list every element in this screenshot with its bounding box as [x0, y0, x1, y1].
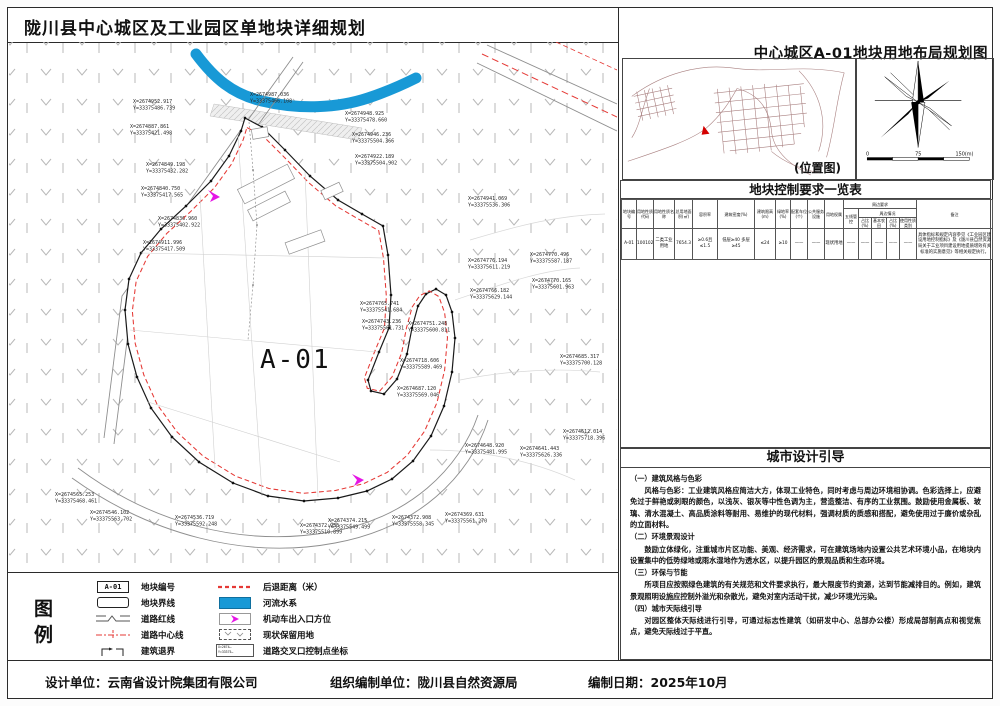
- coordinate-label: X=2674546.102Y=33375563.702: [90, 510, 132, 523]
- design-guide-box: 城市设计引导 （一）建筑风格与色彩 风格与色彩：工业建筑风格应简洁大方，体现工业…: [620, 448, 991, 660]
- coordinate-label: X=2674372.955Y=33375510.899: [300, 523, 342, 536]
- coordinate-label: X=2674718.606Y=33375589.469: [400, 358, 442, 371]
- compass-box: 0 75 150(m): [856, 58, 994, 180]
- plan-sheet: 陇川县中心城区及工业园区单地块详细规划: [7, 7, 993, 699]
- coordinate-label: X=2674849.198Y=33375432.282: [146, 162, 188, 175]
- coordinate-label: X=2674770.165Y=33375601.963: [532, 278, 574, 291]
- legend-item-intersection-coords: X=2674…Y=33375… 道路交叉口控制点坐标: [216, 644, 348, 657]
- existing-land-symbol: [219, 629, 251, 640]
- coordinate-label: X=2674776.194Y=33375611.219: [468, 258, 510, 271]
- vehicle-entrance-symbol: [219, 613, 251, 625]
- legend-column-right: 后退距离（米） 河流水系 机动车出入口方位 现状保留用地 X=2674…Y=33…: [216, 580, 348, 657]
- coordinate-label: X=2674948.925Y=33375478.660: [345, 111, 387, 124]
- plan-map-canvas: A-01 X=2674952.917Y=33375486.739X=267488…: [9, 42, 617, 572]
- intersection-coords-symbol: X=2674…Y=33375…: [216, 644, 254, 657]
- legend-item-existing-land: 现状保留用地: [216, 628, 348, 641]
- design-unit: 设计单位：云南省设计院集团有限公司: [45, 672, 258, 691]
- coordinate-label: X=2674987.036Y=33375466.108: [250, 92, 292, 105]
- map-area: A-01 X=2674952.917Y=33375486.739X=267488…: [8, 42, 618, 572]
- coordinate-label: X=2674911.996Y=33375417.509: [143, 240, 185, 253]
- svg-text:75: 75: [915, 151, 921, 157]
- legend-item-building-setback: 建筑退界: [94, 644, 184, 657]
- legend-item-setback-distance: 后退距离（米）: [216, 580, 348, 593]
- coordinate-label: X=2674648.920Y=33375481.995: [465, 443, 507, 456]
- control-table-box: 地块控制要求一览表 地块编号 用地性质代码 用地性质名称 总用地面积(㎡) 容积…: [620, 180, 991, 448]
- parcel-id-label: A-01: [260, 345, 331, 375]
- svg-text:150(m): 150(m): [955, 151, 973, 157]
- coordinate-label: X=2674743.236Y=33375561.731: [362, 319, 404, 332]
- coordinate-label: X=2674685.317Y=33375700.128: [560, 354, 602, 367]
- coordinate-label: X=2674536.719Y=33375592.248: [175, 515, 217, 528]
- building-setback-symbol: [95, 645, 131, 657]
- sheet-title-bar: 陇川县中心城区及工业园区单地块详细规划: [8, 8, 618, 43]
- coordinate-label: X=2674922.189Y=33375504.902: [355, 154, 397, 167]
- drawing-title: 中心城区A-01地块用地布局规划图: [620, 42, 992, 58]
- coordinate-label: X=2674641.443Y=33375626.336: [520, 446, 562, 459]
- parcel-code-symbol: A-01: [97, 581, 129, 593]
- design-guide-text: （一）建筑风格与色彩 风格与色彩：工业建筑风格应简洁大方，体现工业特色，同时考虑…: [621, 468, 990, 638]
- site-marker-icon: [702, 126, 710, 135]
- legend-item-road-redline: 道路红线: [94, 612, 184, 625]
- coordinate-label: X=2674836.960Y=33375402.922: [158, 216, 200, 229]
- legend-title: 图例: [34, 597, 60, 648]
- legend-item-vehicle-entrance: 机动车出入口方位: [216, 612, 348, 625]
- coordinate-label: X=2674751.248Y=33375600.811: [408, 321, 450, 334]
- coordinate-label: X=2674840.750Y=33375417.565: [141, 186, 183, 199]
- parcel-boundary-symbol: [97, 597, 129, 608]
- river-symbol: [219, 597, 251, 609]
- legend-area: 图例 A-01 地块编号 地块界线 道路红线: [8, 572, 618, 661]
- legend-item-parcel-boundary: 地块界线: [94, 596, 184, 609]
- coordinate-label: X=2674765.741Y=33375541.684: [360, 301, 402, 314]
- footer-bar: 设计单位：云南省设计院集团有限公司 组织编制单位：陇川县自然资源局 编制日期：2…: [8, 660, 992, 699]
- table-row: A-01100102二类工业用地 7654.3≥0.6且≤1.5低层≥40 多层…: [622, 229, 993, 260]
- sheet-title: 陇川县中心城区及工业园区单地块详细规划: [24, 14, 366, 39]
- coordinate-label: X=2674946.236Y=33375504.366: [352, 132, 394, 145]
- control-table-title: 地块控制要求一览表: [621, 181, 990, 199]
- design-guide-title: 城市设计引导: [621, 449, 990, 468]
- north-arrow-icon: 0 75 150(m): [857, 59, 991, 177]
- coordinate-label: X=2674770.496Y=33375587.187: [530, 252, 572, 265]
- location-map-caption: (位置图): [794, 159, 841, 176]
- location-map-box: (位置图): [622, 58, 856, 180]
- coordinate-label: X=2674887.861Y=33375421.498: [130, 124, 172, 137]
- coordinate-label: X=2674766.182Y=33375629.144: [470, 288, 512, 301]
- legend-item-parcel-code: A-01 地块编号: [94, 580, 184, 593]
- coordinate-label: X=2674952.917Y=33375486.739: [133, 99, 175, 112]
- setback-distance-symbol: [217, 581, 253, 593]
- svg-text:0: 0: [866, 151, 869, 157]
- road-redline-symbol: [95, 613, 131, 625]
- legend-item-river: 河流水系: [216, 596, 348, 609]
- coordinate-label: X=2674612.014Y=33375718.396: [563, 429, 605, 442]
- organizing-unit: 组织编制单位：陇川县自然资源局: [330, 672, 518, 691]
- coordinate-label: X=2674941.069Y=33375536.306: [468, 196, 510, 209]
- coordinate-label: X=2674372.908Y=33375558.345: [392, 515, 434, 528]
- control-requirements-table: 地块编号 用地性质代码 用地性质名称 总用地面积(㎡) 容积率 建筑密度(%) …: [621, 199, 993, 260]
- legend-column-left: A-01 地块编号 地块界线 道路红线 道路中心线: [94, 580, 184, 657]
- road-centerline-symbol: [95, 629, 131, 641]
- legend-item-road-centerline: 道路中心线: [94, 628, 184, 641]
- coordinate-label: X=2674369.631Y=33375561.270: [445, 512, 487, 525]
- column-divider: [618, 8, 619, 660]
- compile-date: 编制日期：2025年10月: [588, 672, 728, 691]
- coordinate-label: X=2674565.253Y=33375468.461: [55, 492, 97, 505]
- coordinate-label: X=2674687.120Y=33375569.046: [397, 386, 439, 399]
- scale-bar: 0 75 150(m): [866, 151, 974, 160]
